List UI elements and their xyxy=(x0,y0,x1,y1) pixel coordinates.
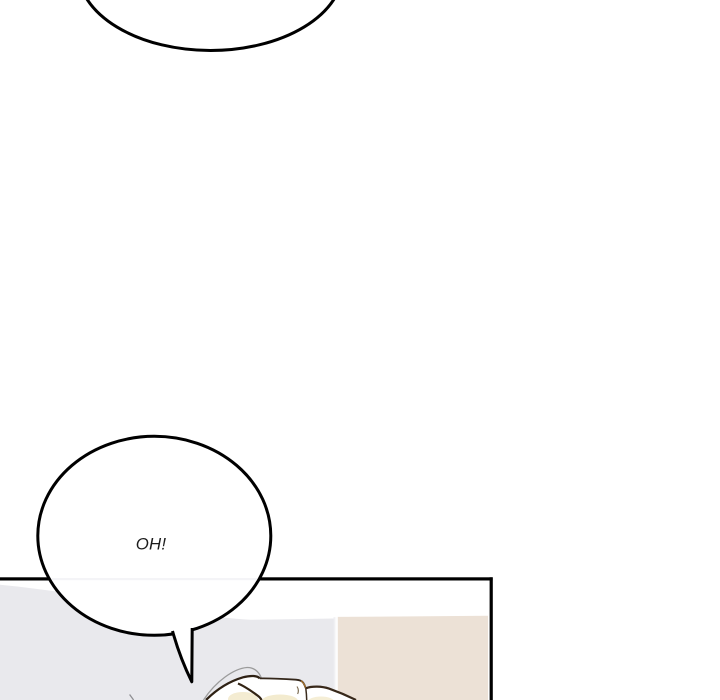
svg-text:OH!: OH! xyxy=(136,535,167,554)
